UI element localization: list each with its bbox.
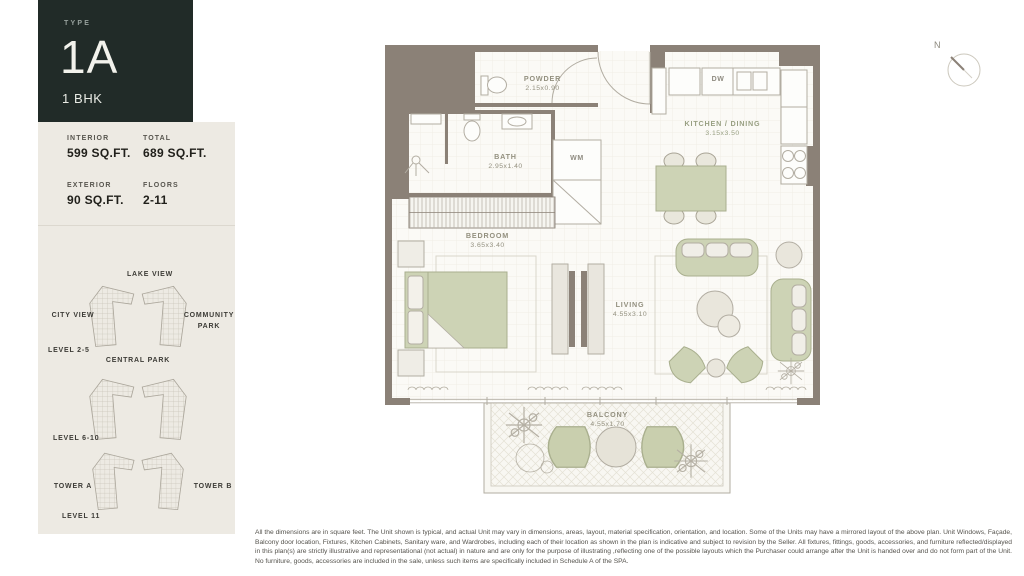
spec-panel: INTERIOR 599 SQ.FT. TOTAL 689 SQ.FT. EXT… (38, 122, 235, 225)
tower-wing (142, 379, 186, 439)
tall-cabinet (652, 68, 666, 114)
room-label-balcony: BALCONY 4.55x1.70 (570, 410, 645, 430)
spec-value: 599 SQ.FT. (67, 146, 131, 160)
unit-type: 1A (60, 30, 118, 84)
shower-shelf (411, 114, 441, 124)
bath-toilet-tank (464, 114, 480, 120)
bath-toilet-bowl (464, 121, 480, 141)
sink-basin (737, 72, 751, 90)
spec-value: 2-11 (143, 193, 179, 207)
spec-value: 689 SQ.FT. (143, 146, 207, 160)
keyplan-level-6-10: LEVEL 6-10 (53, 434, 123, 445)
compass-needle-tail (964, 70, 972, 78)
tower-wing (93, 453, 134, 509)
wm-label: WM (556, 155, 598, 162)
nightstand (398, 350, 424, 376)
powder-toilet-bowl (488, 77, 507, 93)
north-compass (940, 44, 988, 92)
side-table (776, 242, 802, 268)
room-label-living: LIVING 4.55x3.10 (597, 300, 663, 320)
keyplan-tower-b: TOWER B (190, 482, 236, 493)
room-label-powder: POWDER 2.15x0.90 (505, 74, 580, 94)
tower-wing (90, 286, 134, 346)
pillow (408, 276, 423, 309)
room-label-bedroom: BEDROOM 3.65x3.40 (450, 231, 525, 251)
fridge (669, 68, 700, 95)
room-label-bath: BATH 2.95x1.40 (468, 152, 543, 172)
keyplan-community-park: COMMUNITY PARK (181, 311, 237, 332)
dining-table (656, 166, 726, 211)
keyplan-level-2-5: LEVEL 2-5 (48, 346, 108, 357)
keyplan-lake-view: LAKE VIEW (100, 270, 200, 281)
nightstand (398, 241, 424, 267)
keyplan-city-view: CITY VIEW (50, 311, 96, 322)
coffee-table-small (718, 315, 740, 337)
dw-label: DW (700, 76, 736, 83)
pillow (408, 311, 423, 344)
spec-exterior: EXTERIOR 90 SQ.FT. (67, 182, 124, 207)
wardrobe (409, 197, 555, 228)
cushion (682, 243, 704, 257)
tower-wing (142, 286, 186, 346)
keyplan-level-11: LEVEL 11 (62, 512, 122, 523)
type-label: TYPE (64, 20, 91, 27)
cushion (706, 243, 728, 257)
compass-needle (951, 57, 964, 70)
keyplan-central-park: CENTRAL PARK (96, 356, 180, 367)
keyplan-tower-a: TOWER A (50, 482, 96, 493)
sink-basin (753, 72, 767, 90)
cushion (792, 309, 806, 331)
cushion (730, 243, 752, 257)
bath-sink (508, 117, 526, 126)
powder-toilet-tank (481, 76, 488, 95)
accent-table (707, 359, 725, 377)
room-label-kitchen: KITCHEN / DINING 3.15x3.50 (670, 119, 775, 139)
tower-wing (90, 379, 134, 439)
spec-value: 90 SQ.FT. (67, 193, 124, 207)
balcony-table (596, 427, 636, 467)
spec-label: TOTAL (143, 135, 207, 142)
spec-label: FLOORS (143, 182, 179, 189)
keyplan-footprint-level-6-10 (86, 376, 190, 442)
unit-config: 1 BHK (62, 91, 103, 106)
cushion (792, 285, 806, 307)
balcony-chair (548, 427, 590, 468)
spec-label: EXTERIOR (67, 182, 124, 189)
spec-interior: INTERIOR 599 SQ.FT. (67, 135, 131, 160)
floorplan (370, 30, 840, 508)
spec-label: INTERIOR (67, 135, 131, 142)
keyplan-footprint-level-2-5 (86, 283, 190, 349)
brochure-page: TYPE 1A 1 BHK INTERIOR 599 SQ.FT. TOTAL … (0, 0, 1024, 576)
spec-floors: FLOORS 2-11 (143, 182, 179, 207)
cushion (792, 333, 806, 355)
keyplan-panel: LAKE VIEW CITY VIEW COMMUNITY PARK LEVEL… (38, 225, 235, 534)
compass-north-letter: N (934, 40, 941, 50)
spec-total: TOTAL 689 SQ.FT. (143, 135, 207, 160)
unit-type-card: TYPE 1A 1 BHK (38, 0, 193, 122)
tower-wing (142, 453, 183, 509)
keyplan-footprint-level-11 (88, 450, 188, 512)
disclaimer-text: All the dimensions are in square feet. T… (255, 528, 1012, 566)
